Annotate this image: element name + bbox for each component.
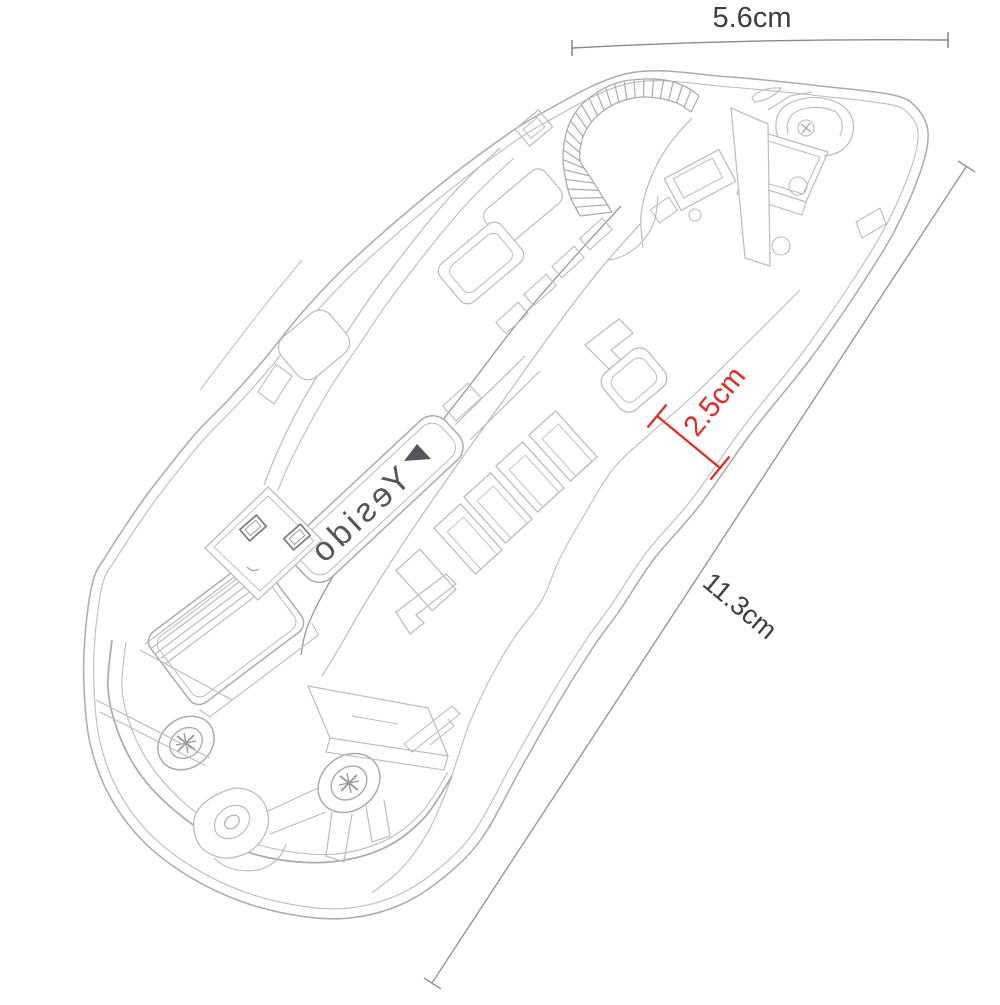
svg-text:5.6cm: 5.6cm [713,2,792,34]
